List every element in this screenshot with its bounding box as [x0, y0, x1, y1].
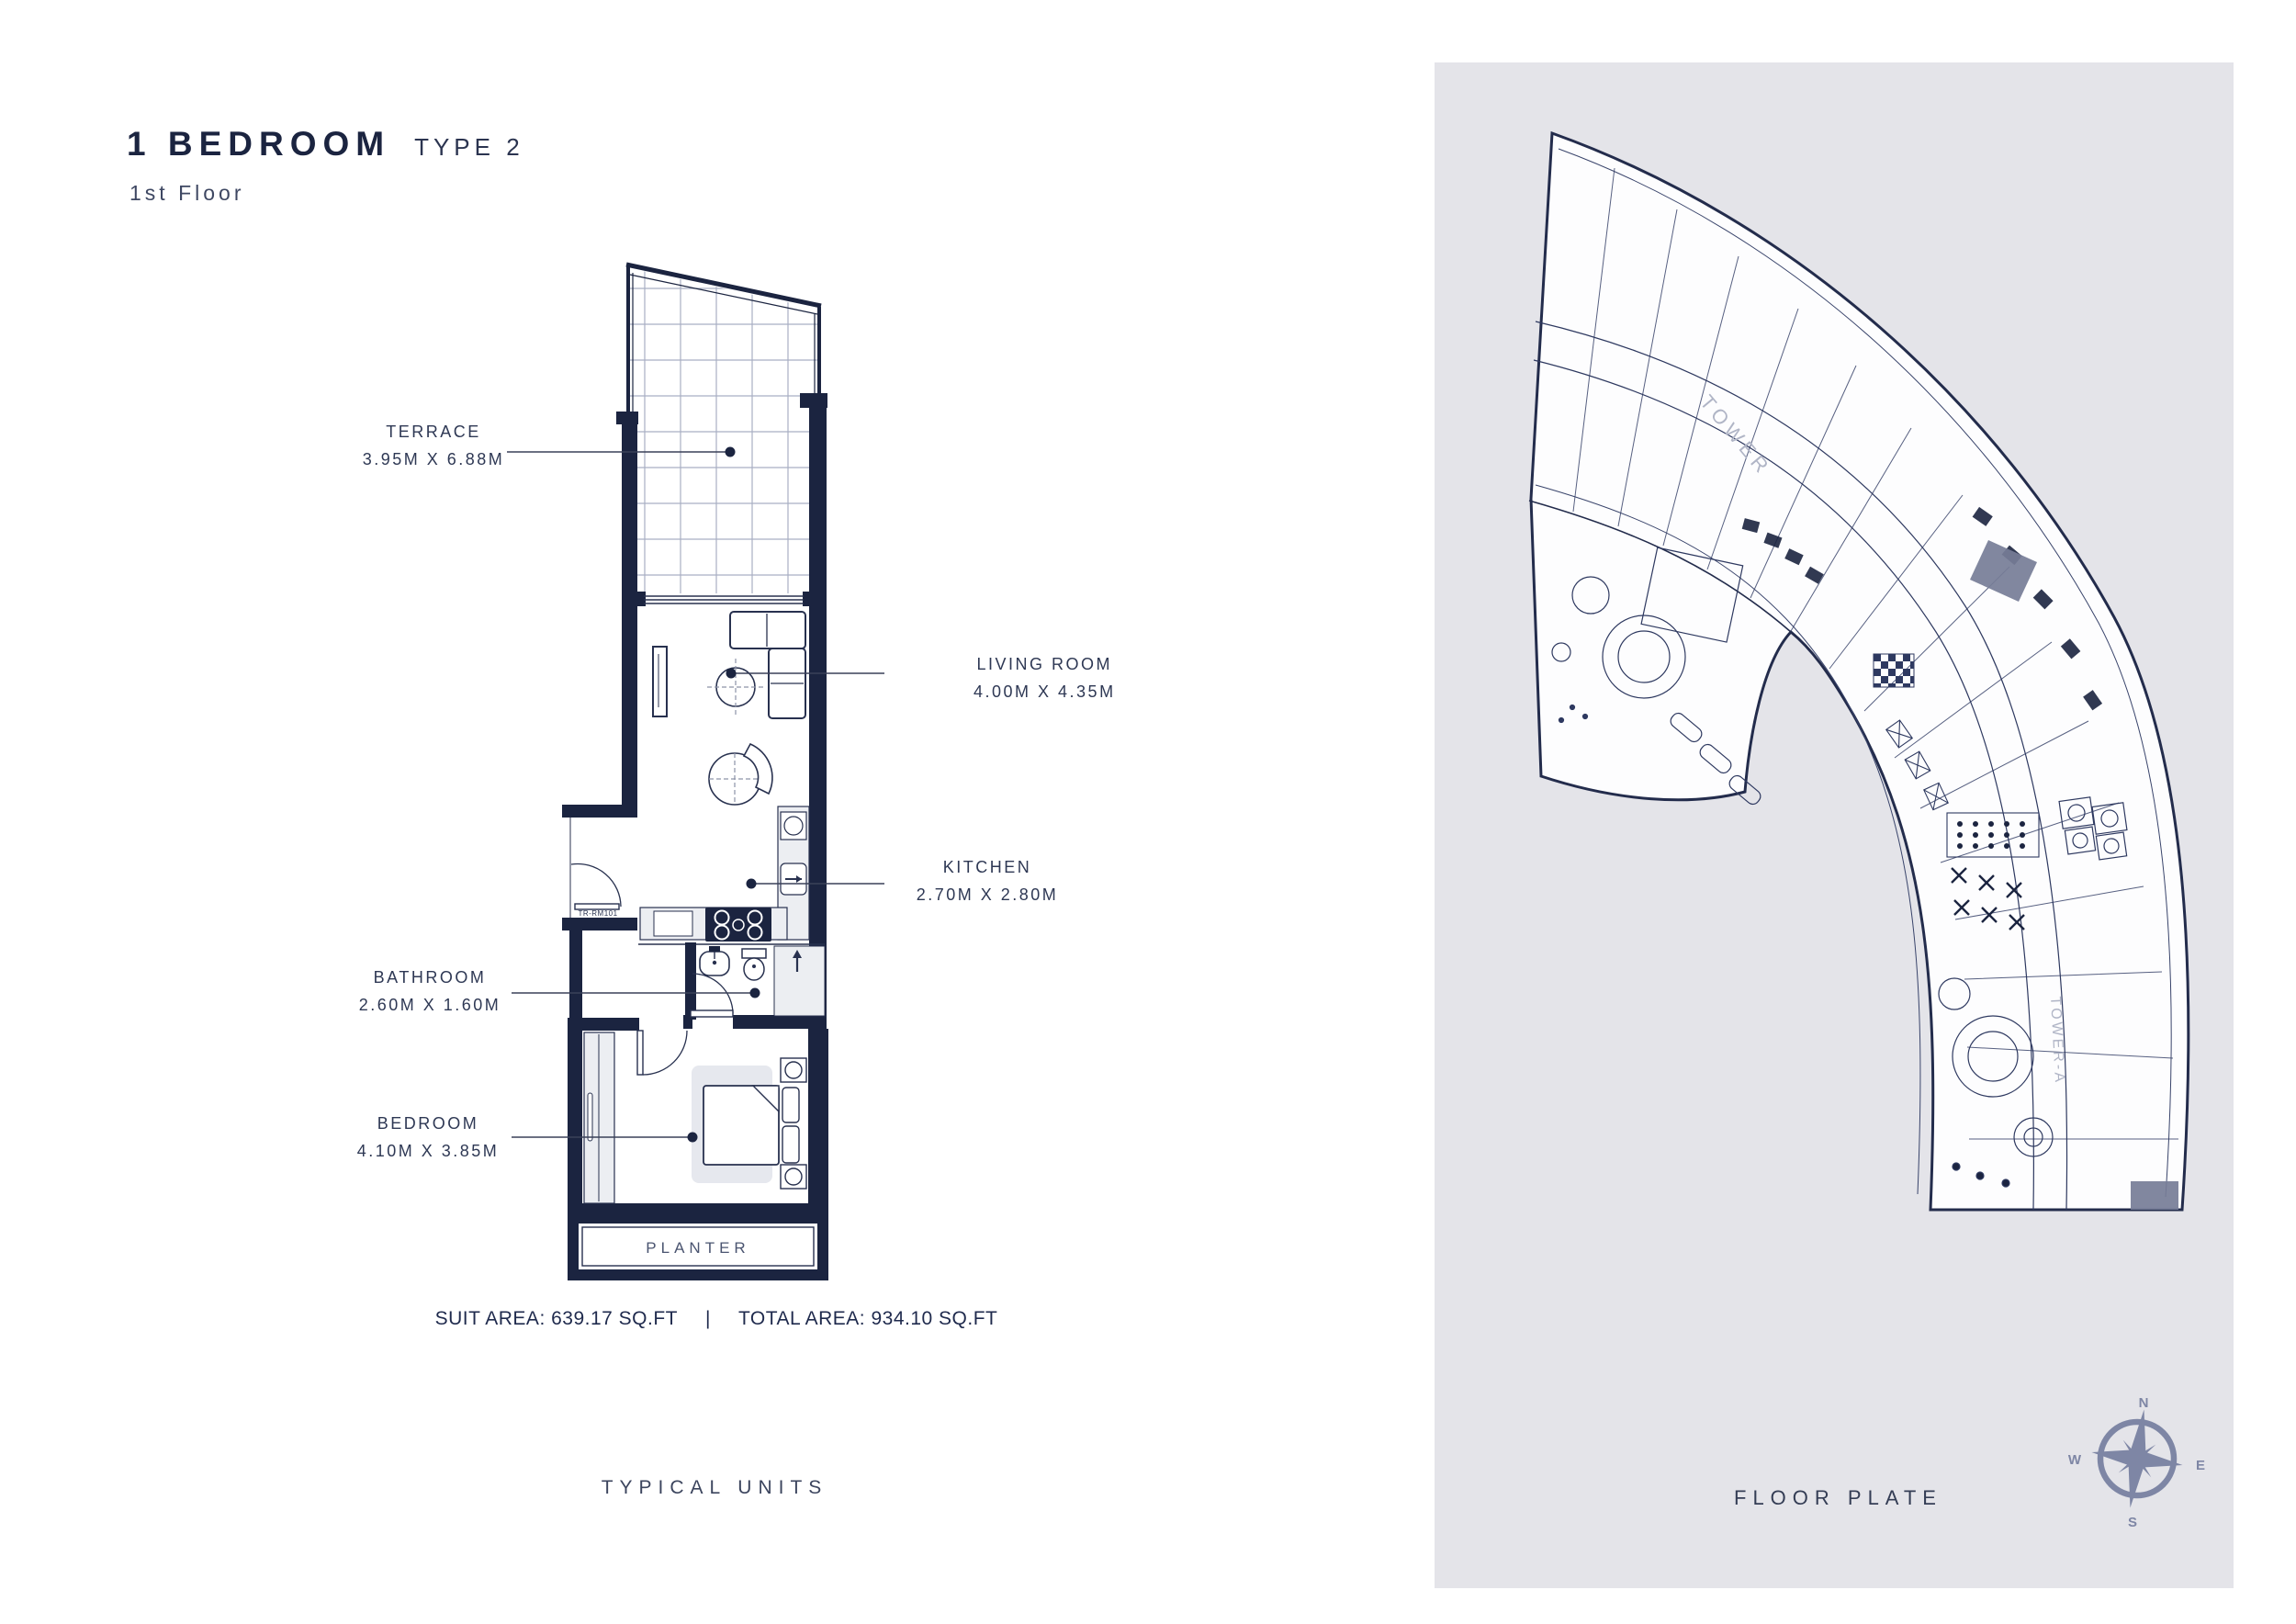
leader-dots: [688, 447, 760, 1143]
checker-tile-area: [1874, 654, 1914, 687]
floor-plate-drawing: TOWER TOWER-A N E S W: [1435, 62, 2234, 1588]
floor-subtitle: 1st Floor: [129, 181, 244, 206]
area-separator: |: [705, 1308, 711, 1330]
toilet-icon: [742, 949, 766, 980]
room-dims: 2.70M X 2.80M: [917, 885, 1059, 904]
entry-room-tag: TR-RM101: [578, 909, 617, 918]
page-title: 1 BEDROOM TYPE 2: [127, 125, 524, 164]
page: 1 BEDROOM TYPE 2 1st Floor: [0, 0, 2296, 1624]
bathroom-sink-icon: [700, 946, 729, 976]
unit-type-title: 1 BEDROOM: [127, 125, 390, 164]
bathroom-walls: [638, 942, 827, 1029]
planter-label: PLANTER: [646, 1239, 749, 1257]
entry-door: [571, 863, 621, 909]
unit-type-variant: TYPE 2: [414, 133, 524, 162]
room-label-terrace: TERRACE 3.95M X 6.88M: [363, 418, 505, 473]
compass-east-label: E: [2196, 1458, 2205, 1473]
shower-area: [774, 946, 825, 1016]
room-label-bathroom: BATHROOM 2.60M X 1.60M: [359, 964, 501, 1019]
building-outline: [1531, 133, 2189, 1210]
room-name: LIVING ROOM: [977, 655, 1113, 673]
bedroom-walls: [568, 1018, 828, 1219]
suit-area-value: SUIT AREA: 639.17 SQ.FT: [435, 1308, 678, 1329]
room-dims: 2.60M X 1.60M: [359, 996, 501, 1014]
compass-south-label: S: [2128, 1515, 2137, 1530]
floor-plate-caption: FLOOR PLATE: [1734, 1486, 1942, 1510]
bedroom-rug: [692, 1066, 772, 1183]
room-label-living-room: LIVING ROOM 4.00M X 4.35M: [974, 650, 1116, 705]
kitchen-counter: [640, 806, 809, 940]
bathroom-door: [691, 974, 733, 1017]
floor-plate-panel: TOWER TOWER-A N E S W: [1435, 62, 2234, 1588]
highlighted-unit-2: [2131, 1181, 2178, 1210]
room-label-bedroom: BEDROOM 4.10M X 3.85M: [357, 1110, 500, 1165]
tv-unit: [653, 647, 667, 716]
sofa: [730, 612, 805, 718]
room-dims: 4.00M X 4.35M: [974, 682, 1116, 701]
nightstand: [781, 1058, 806, 1189]
room-name: BEDROOM: [377, 1114, 479, 1133]
sliding-door: [637, 592, 811, 606]
bedroom-door: [637, 1031, 687, 1075]
compass-west-label: W: [2068, 1452, 2082, 1468]
bed: [703, 1086, 799, 1165]
coffee-table: [707, 659, 764, 716]
living-room-walls: [562, 595, 827, 1029]
planter-box: [568, 1212, 828, 1280]
terrace-tile-grid: [625, 257, 822, 597]
total-area-value: TOTAL AREA: 934.10 SQ.FT: [738, 1308, 997, 1329]
room-dims: 3.95M X 6.88M: [363, 450, 505, 468]
stove: [705, 908, 771, 942]
room-name: TERRACE: [386, 423, 481, 441]
terrace-walls: [616, 265, 827, 595]
compass-north-label: N: [2139, 1395, 2149, 1411]
compass-rose-icon: [2085, 1404, 2189, 1515]
dining-table: [709, 744, 772, 805]
room-name: BATHROOM: [374, 968, 487, 987]
room-name: KITCHEN: [943, 858, 1032, 876]
leader-lines: [507, 452, 884, 1137]
room-label-kitchen: KITCHEN 2.70M X 2.80M: [917, 853, 1059, 908]
wardrobe: [584, 1032, 614, 1203]
area-summary: SUIT AREA: 639.17 SQ.FT|TOTAL AREA: 934.…: [358, 1308, 1075, 1330]
room-dims: 4.10M X 3.85M: [357, 1142, 500, 1160]
typical-units-caption: TYPICAL UNITS: [531, 1477, 898, 1499]
